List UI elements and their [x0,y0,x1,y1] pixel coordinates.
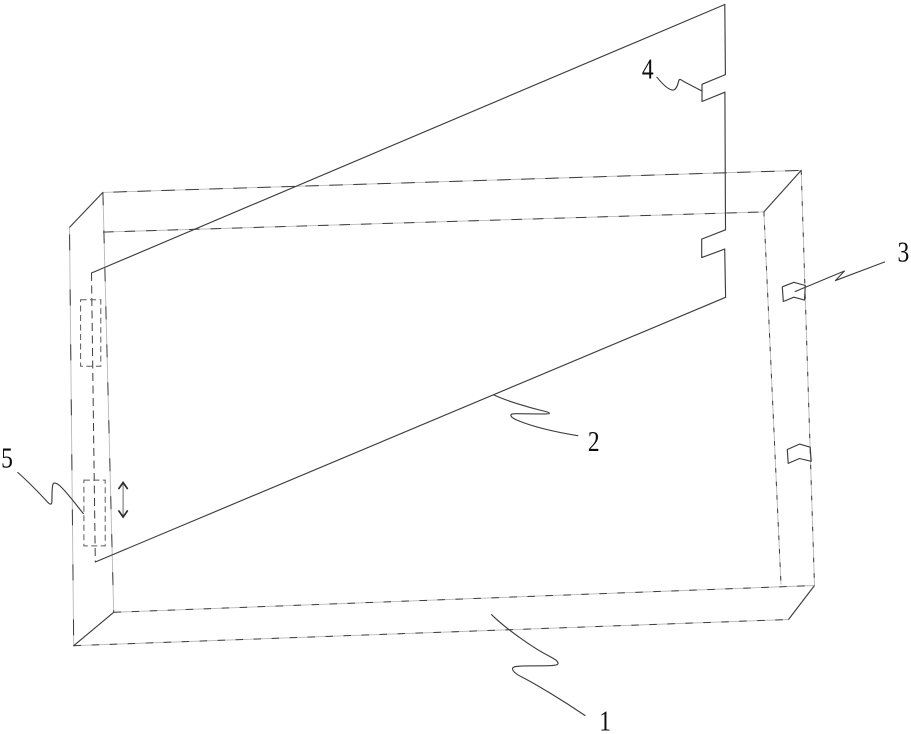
svg-text:3: 3 [898,237,910,268]
svg-text:5: 5 [1,443,13,474]
svg-text:2: 2 [588,426,600,457]
svg-text:4: 4 [642,54,654,85]
svg-text:1: 1 [599,706,611,734]
